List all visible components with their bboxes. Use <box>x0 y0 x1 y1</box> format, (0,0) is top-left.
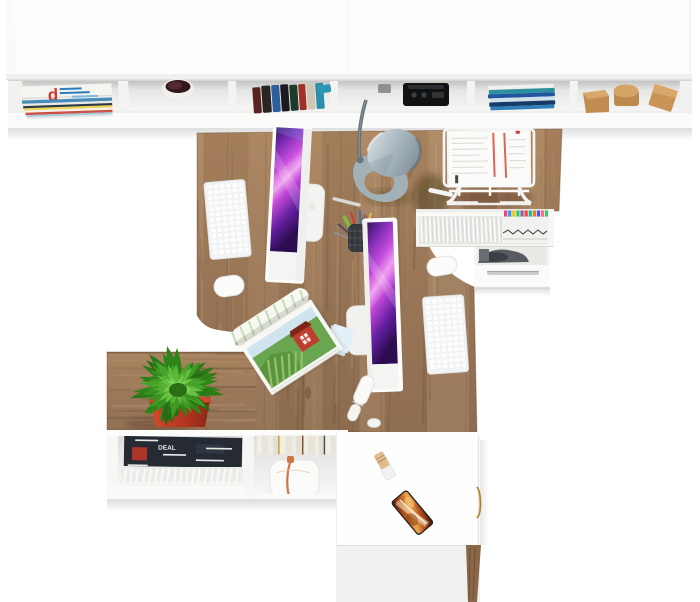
svg-text:DEAL: DEAL <box>158 445 176 452</box>
